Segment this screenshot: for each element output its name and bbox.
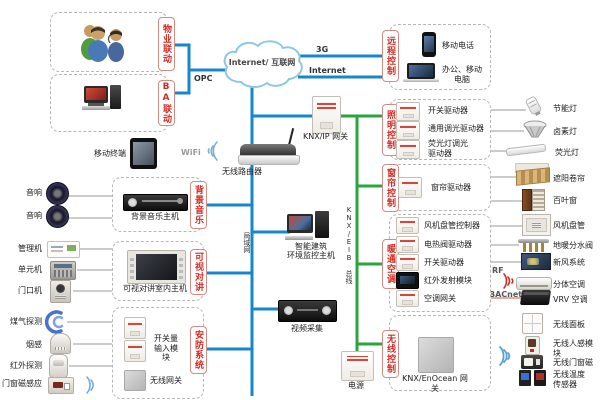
- fancoil-controller-icon: [396, 217, 419, 234]
- speaker-icon: [46, 182, 69, 205]
- rf-waves-icon: [500, 272, 516, 290]
- video-capture-icon: [278, 300, 337, 322]
- enocean-gateway-label: KNX/EnOcean 网关: [400, 374, 470, 393]
- wifi-waves-icon: [203, 140, 221, 162]
- wireless-panel-icon: [522, 313, 543, 334]
- hvac-switch-actuator-label: 开关驱动器: [424, 258, 464, 268]
- intercom-host-label: 可视对讲室内主机: [120, 284, 190, 294]
- unit-machine-icon: [50, 261, 76, 280]
- door-magnet-waves-icon: [82, 375, 100, 395]
- curtain-actuator-icon: [398, 177, 422, 198]
- group-label-remote: 远程控制: [382, 30, 399, 82]
- knx-ip-gateway-label: KNX/IP 网关: [303, 132, 348, 142]
- internet-cloud-label: Internet/ 互联网: [224, 58, 300, 68]
- group-label-intercom: 可视对讲: [190, 249, 207, 295]
- enocean-gateway-icon: [418, 337, 454, 373]
- laptop-icon: [407, 63, 435, 79]
- ac-gateway-label: 空调网关: [424, 294, 456, 304]
- ir-emitter-icon: [396, 272, 419, 289]
- security-wireless-gateway-icon: [124, 370, 146, 391]
- manifold-icon: [518, 237, 549, 253]
- ba-computer-icon: [84, 86, 108, 103]
- group-label-ba: BA联动: [158, 80, 175, 126]
- ba-computer-tower: [110, 85, 121, 109]
- video-capture-label: 视频采集: [291, 324, 323, 334]
- lan-bus-label: 局域网: [242, 232, 252, 253]
- knx-system-diagram: 物业联动 BA联动 背景音乐 可视对讲 安防系统 远程控制 照明控制 窗帘控制 …: [0, 0, 600, 400]
- laptop-base: [403, 79, 439, 82]
- mobile-terminal-label: 移动终端: [94, 149, 126, 159]
- dimmer-actuator-icon: [396, 121, 420, 140]
- gas-detector-icon: [45, 310, 71, 334]
- ir-emitter-label: 红外发射模块: [424, 276, 472, 286]
- knx-ip-gateway-icon: [312, 96, 341, 134]
- split-ac-icon: [516, 277, 552, 290]
- mobile-phone-icon: [422, 32, 436, 57]
- speaker-icon: [46, 205, 69, 228]
- input-module-label: 开关量输入模块: [151, 334, 181, 363]
- fluorescent-dimmer-icon: [396, 140, 420, 159]
- fresh-air-icon: [521, 253, 551, 270]
- router-label: 无线路由器: [222, 167, 262, 177]
- env-host-label-line2: 环境监控主机: [283, 251, 339, 261]
- management-unit-icon: [47, 241, 80, 258]
- office-pc-label: 办公、移动电脑: [440, 65, 484, 84]
- valve-actuator-label: 电热阀驱动器: [424, 240, 472, 250]
- ir-detector-icon: [49, 354, 68, 378]
- group-label-security: 安防系统: [190, 326, 207, 374]
- group-label-wireless: 无线控制: [382, 330, 399, 378]
- input-module-icon: [124, 317, 146, 339]
- switch-actuator-label: 开关驱动器: [428, 106, 468, 116]
- ac-gateway-icon: [396, 290, 419, 307]
- env-host-keyboard: [285, 236, 313, 240]
- switch-actuator-icon: [396, 102, 420, 121]
- door-station-icon: [50, 280, 71, 303]
- wireless-temp-sensor-icon: [519, 370, 546, 386]
- wireless-door-magnet-icon: [521, 355, 543, 369]
- input-module-icon: [124, 340, 146, 362]
- wireless-pir-icon: [525, 336, 540, 355]
- group-label-property: 物业联动: [158, 17, 175, 71]
- fan-coil-icon: [522, 214, 551, 236]
- knx-bus-label: KNX/EIB 总线: [344, 206, 354, 284]
- curtain-actuator-label: 窗帘驱动器: [431, 183, 471, 193]
- fancoil-controller-label: 风机盘管控制器: [424, 221, 480, 231]
- security-wireless-gateway-label: 无线网关: [150, 376, 182, 386]
- fluorescent-dimmer-label: 荧光灯调光驱动器: [428, 139, 470, 158]
- tablet-icon: [130, 138, 157, 169]
- env-host-tower: [315, 211, 329, 238]
- awning-icon: [515, 163, 549, 187]
- group-label-bgm: 背景音乐: [190, 181, 207, 229]
- vrv-ac-icon: [520, 290, 551, 305]
- people-icon: [78, 19, 126, 63]
- blinds-icon: [522, 189, 544, 209]
- bgm-host-icon: [123, 194, 188, 211]
- ba-computer-keyboard: [82, 106, 110, 110]
- wireless-router-icon: [238, 128, 300, 168]
- dimmer-actuator-label: 通用调光驱动器: [428, 124, 486, 134]
- valve-actuator-icon: [396, 236, 419, 253]
- bgm-host-label: 背景音乐主机: [122, 212, 188, 222]
- hvac-switch-actuator-icon: [396, 254, 419, 271]
- mobile-phone-label: 移动电话: [442, 41, 474, 51]
- ba-linkage-box: [50, 74, 168, 132]
- group-label-curtain: 窗帘控制: [382, 164, 399, 212]
- halogen-lamp-icon: [522, 120, 548, 140]
- door-magnet-icon: [48, 377, 74, 394]
- intercom-host-icon: [127, 250, 186, 284]
- smoke-detector-icon: [50, 333, 71, 354]
- env-host-icon: [287, 214, 313, 233]
- enocean-waves-icon: [496, 345, 514, 367]
- power-supply-icon: [341, 351, 374, 381]
- power-supply-label: 电源: [348, 381, 364, 391]
- line-property-ba: [173, 45, 189, 93]
